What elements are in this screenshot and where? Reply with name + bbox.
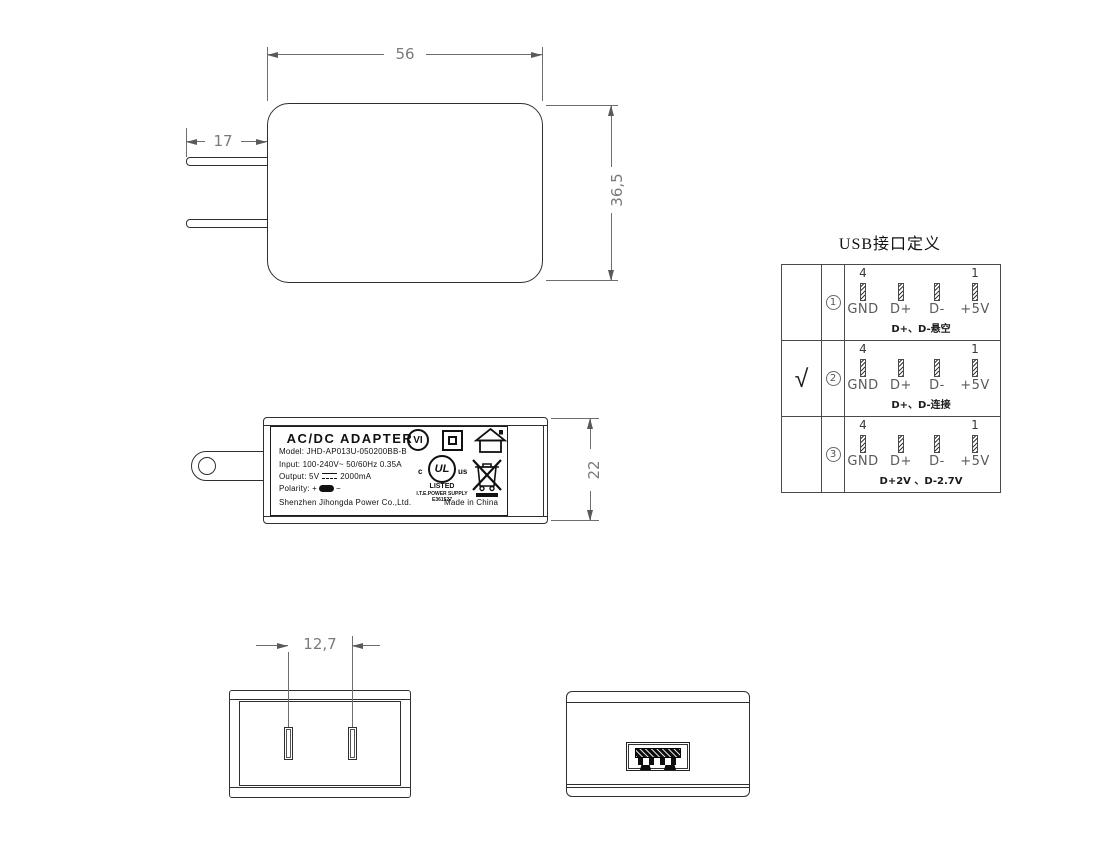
usb-port-foot — [640, 765, 651, 770]
label-input: Input: 100-240V~ 50/60Hz 0.35A — [279, 460, 402, 469]
plug-face-inner-frame — [239, 701, 401, 786]
row3-pin-label-gnd: GND — [846, 454, 880, 469]
usb-pin-icon — [972, 435, 978, 453]
row2-caption: D+、D-连接 — [845, 396, 997, 411]
circled-number-2: 2 — [826, 371, 841, 386]
dim-127-arrow-right — [352, 643, 363, 649]
usb-table-row-1: 1 4 1 GND D+ D- +5V D+、D-悬空 — [782, 265, 1000, 341]
dim-22-arrow-bottom — [587, 510, 593, 521]
dim-17-arrow-left — [186, 139, 197, 145]
dim-56-ext-right — [542, 47, 543, 101]
row2-pins-cell: 4 1 GND D+ D- +5V D+、D-连接 — [845, 341, 1000, 416]
row2-number-cell: 2 — [822, 341, 845, 416]
side-view-prong-hole — [198, 457, 216, 475]
usb-port-contact — [649, 758, 654, 765]
ul-listed: LISTED — [417, 483, 467, 490]
circled-number-3: 3 — [826, 447, 841, 462]
row3-pin1-number: 1 — [967, 418, 983, 432]
indoor-use-house-icon — [474, 427, 507, 454]
row3-pins-cell: 4 1 GND D+ D- +5V D+2V 、D-2.7V — [845, 417, 1000, 492]
row2-pin-label-gnd: GND — [846, 378, 880, 393]
row3-pin-label-dplus: D+ — [884, 454, 918, 469]
dim-56-text: 56 — [384, 46, 426, 62]
row1-pins-cell: 4 1 GND D+ D- +5V D+、D-悬空 — [845, 265, 1000, 340]
dim-56-arrow-left — [267, 52, 278, 58]
class2-insulation-icon — [442, 430, 463, 451]
row1-pin-label-dplus: D+ — [884, 302, 918, 317]
output-face-bottom-line-1 — [567, 784, 749, 785]
drawing-canvas: 56 36,5 17 AC/DC ADAPTER Model: JHD-AP01… — [0, 0, 1100, 861]
usb-pin-icon — [972, 283, 978, 301]
row2-pin-label-dminus: D- — [920, 378, 954, 393]
dim-36-arrow-top — [608, 105, 614, 116]
usb-port-contact — [671, 758, 676, 765]
row1-number-cell: 1 — [822, 265, 845, 340]
row2-pin-label-dplus: D+ — [884, 378, 918, 393]
dim-17-text: 17 — [205, 133, 241, 149]
usb-port-contact — [638, 758, 643, 765]
row1-pin4-number: 4 — [855, 266, 871, 280]
dim-36-text: 36,5 — [609, 167, 625, 213]
polarity-barrel-icon — [319, 485, 334, 492]
row1-selected-cell — [782, 265, 822, 340]
efficiency-vi-text: VI — [413, 435, 422, 446]
polarity-plus: + — [312, 484, 317, 493]
usb-pin-icon — [898, 435, 904, 453]
ul-c: c — [418, 467, 422, 476]
usb-pin-icon — [934, 283, 940, 301]
dc-voltage-icon — [322, 473, 337, 479]
ul-letters: UL — [435, 463, 450, 475]
plug-face-bottom-strip — [229, 787, 411, 798]
usb-pin-icon — [860, 283, 866, 301]
label-company: Shenzhen Jihongda Power Co.,Ltd. — [279, 498, 411, 507]
row3-caption: D+2V 、D-2.7V — [845, 472, 997, 487]
dim-17-arrow-right — [256, 139, 267, 145]
ul-file-number: E361527 — [417, 497, 467, 503]
row3-pin4-number: 4 — [855, 418, 871, 432]
row1-pin-label-gnd: GND — [846, 302, 880, 317]
row1-pin-label-5v: +5V — [956, 302, 994, 317]
label-model: Model: JHD-AP013U-050200BB-B — [279, 447, 407, 456]
dim-56-arrow-right — [531, 52, 542, 58]
label-polarity-word: Polarity: — [279, 484, 310, 493]
usb-port-tongue — [635, 748, 681, 758]
circled-number-1: 1 — [826, 295, 841, 310]
usb-pinout-table: 1 4 1 GND D+ D- +5V D+、D-悬空 √ 2 4 — [781, 264, 1001, 493]
dim-22-text: 22 — [586, 449, 602, 491]
plug-slot-right — [348, 727, 357, 760]
front-view-prong-bottom — [186, 219, 268, 228]
output-face-top-line — [567, 702, 749, 703]
row2-selected-cell: √ — [782, 341, 822, 416]
usb-pin-icon — [972, 359, 978, 377]
product-label: AC/DC ADAPTER Model: JHD-AP013U-050200BB… — [270, 426, 508, 516]
usb-pin-icon — [898, 359, 904, 377]
usb-table-row-2: √ 2 4 1 GND D+ D- +5V D+、D-连接 — [782, 341, 1000, 417]
dim-127-arrow-left — [277, 643, 288, 649]
front-view-body — [267, 103, 543, 283]
row1-caption: D+、D-悬空 — [845, 320, 997, 335]
row1-pin-label-dminus: D- — [920, 302, 954, 317]
plug-slot-left — [284, 727, 293, 760]
side-view-lip-bottom — [264, 516, 547, 517]
usb-pin-icon — [934, 359, 940, 377]
usb-port-foot — [664, 765, 676, 770]
label-polarity: Polarity: +− — [279, 484, 341, 493]
usb-pin-icon — [934, 435, 940, 453]
front-view-prong-top — [186, 157, 268, 166]
row3-number-cell: 3 — [822, 417, 845, 492]
side-view-inner-right — [543, 425, 544, 517]
row3-selected-cell — [782, 417, 822, 492]
label-output: Output: 5V2000mA — [279, 472, 371, 481]
usb-table-row-3: 3 4 1 GND D+ D- +5V D+2V 、D-2.7V — [782, 417, 1000, 492]
dim-36-arrow-bottom — [608, 270, 614, 281]
dim-127-ext-right — [352, 636, 353, 727]
ul-us: us — [458, 467, 467, 476]
label-title: AC/DC ADAPTER — [275, 431, 425, 446]
label-output-prefix: Output: 5V — [279, 472, 319, 481]
weee-bin-icon — [471, 456, 503, 498]
row2-pin-label-5v: +5V — [956, 378, 994, 393]
row2-pin1-number: 1 — [967, 342, 983, 356]
ul-mark-icon: UL — [428, 455, 456, 483]
row2-pin4-number: 4 — [855, 342, 871, 356]
usb-port-contact — [660, 758, 665, 765]
usb-pin-icon — [860, 435, 866, 453]
dim-22-arrow-top — [587, 418, 593, 429]
row3-pin-label-5v: +5V — [956, 454, 994, 469]
row3-pin-label-dminus: D- — [920, 454, 954, 469]
usb-pin-icon — [860, 359, 866, 377]
row1-pin1-number: 1 — [967, 266, 983, 280]
usb-port — [626, 742, 690, 771]
usb-table-title: USB接口定义 — [781, 230, 999, 254]
output-face-bottom-line-2 — [567, 787, 749, 788]
usb-pin-icon — [898, 283, 904, 301]
efficiency-vi-icon: VI — [407, 429, 429, 451]
polarity-minus: − — [336, 484, 341, 493]
label-output-suffix: 2000mA — [340, 472, 371, 481]
dim-127-text: 12,7 — [288, 636, 352, 652]
